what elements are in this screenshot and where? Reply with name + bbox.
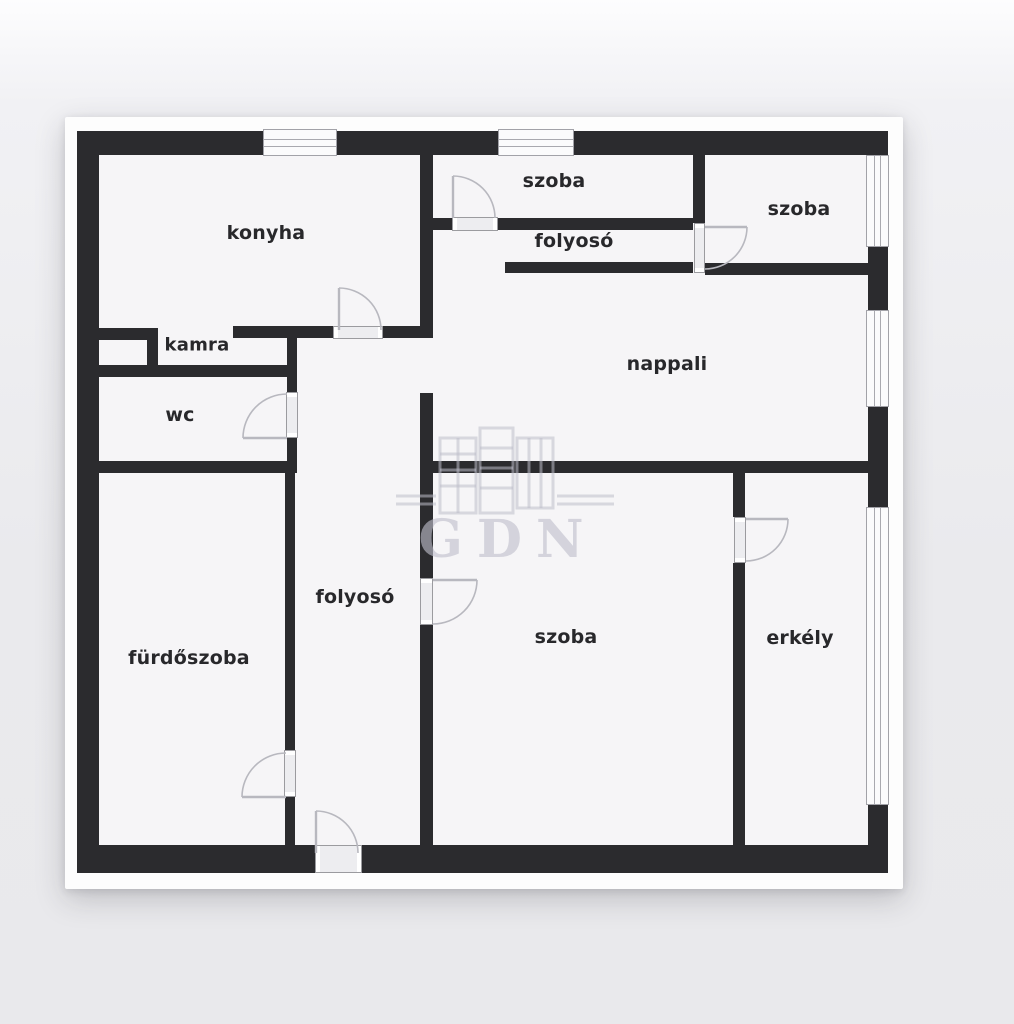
room-label-kamra: kamra: [165, 335, 230, 356]
wall-szoba-bottom-left-upper: [420, 393, 433, 578]
room-label-wc: wc: [165, 404, 194, 426]
wall-folyoso-top-bottom: [505, 262, 693, 273]
room-label-szoba-top-right: szoba: [768, 198, 831, 220]
room-label-furdoszoba: fürdőszoba: [128, 647, 250, 669]
door-furdoszoba: [284, 750, 296, 797]
wall-szoba-bottom-left-lower: [420, 625, 433, 850]
window-szoba-top: [498, 129, 574, 156]
wall-furdo-right-lower: [285, 797, 295, 845]
wall-szoba-top-stub: [433, 218, 452, 230]
door-szoba-tr: [694, 223, 705, 273]
room-label-erkely: erkély: [766, 627, 833, 649]
room-label-szoba-bottom: szoba: [535, 626, 598, 648]
room-label-folyoso-top: folyosó: [534, 230, 613, 252]
wall-konyha-bottom-left: [233, 326, 333, 338]
door-erkely: [734, 517, 746, 563]
wall-szoba-tr-bottom: [705, 263, 868, 275]
wall-furdo-right-upper: [285, 473, 295, 750]
wall-erkely-divider-upper: [733, 473, 745, 517]
wall-erkely-divider-lower: [733, 563, 745, 845]
wall-szoba-tr-left: [693, 152, 705, 223]
wall-outer-top: [77, 131, 888, 155]
wall-nappali-bottom: [433, 461, 868, 473]
floor-plan: GDN konyha kamra wc szoba folyosó szoba …: [0, 0, 1014, 1024]
room-label-konyha: konyha: [227, 222, 306, 244]
plan-floor: [85, 139, 880, 865]
window-erkely: [866, 507, 889, 805]
wall-outer-bottom: [77, 845, 888, 873]
door-konyha: [333, 326, 383, 339]
wall-konyha-bottom-right: [383, 326, 433, 338]
door-szoba-top: [452, 217, 498, 231]
wall-outer-left: [77, 131, 99, 873]
wall-wc-bottom: [77, 461, 297, 473]
room-label-nappali: nappali: [627, 353, 708, 375]
door-entry: [315, 845, 362, 873]
wall-corridor-left-upper: [287, 330, 297, 392]
door-wc: [286, 392, 298, 438]
window-konyha-top: [263, 129, 337, 156]
room-label-folyoso-bottom: folyosó: [315, 586, 394, 608]
window-szoba-tr: [866, 155, 889, 247]
wall-konyha-right: [420, 152, 433, 338]
wall-kamra-bottom: [83, 365, 297, 377]
wall-szoba-top-bottom: [498, 218, 693, 230]
room-label-szoba-top: szoba: [523, 170, 586, 192]
window-nappali: [866, 310, 889, 407]
door-szoba-bottom: [420, 578, 433, 625]
